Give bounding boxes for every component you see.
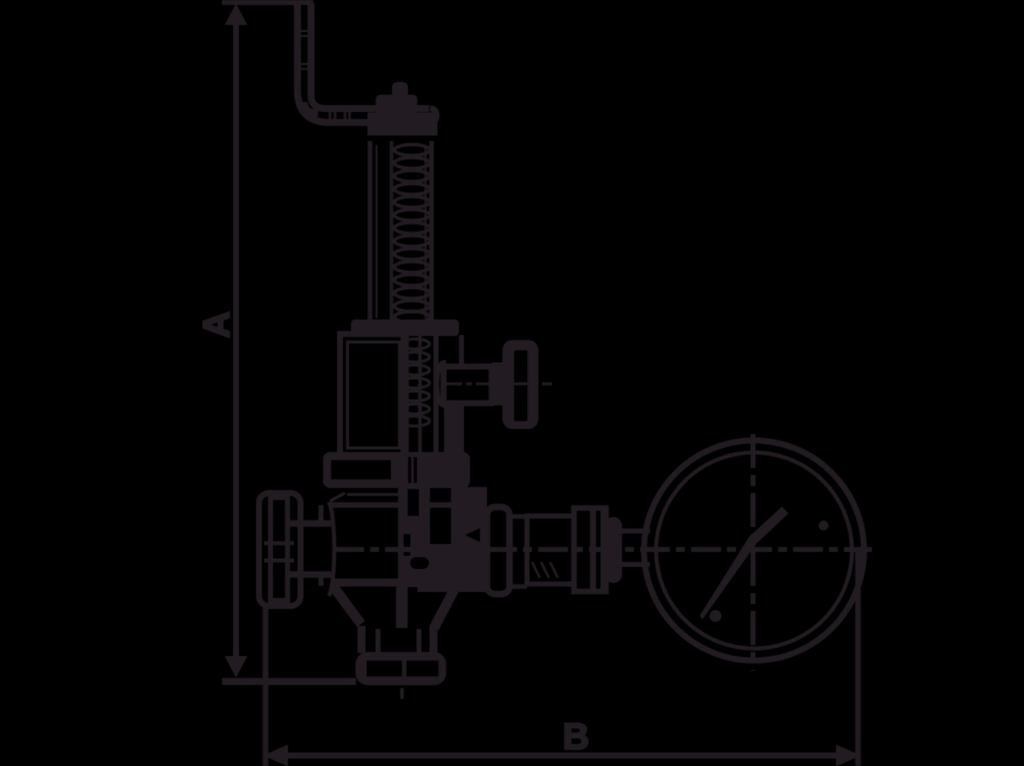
svg-text:B: B [563, 716, 590, 757]
svg-text:A: A [196, 311, 237, 338]
